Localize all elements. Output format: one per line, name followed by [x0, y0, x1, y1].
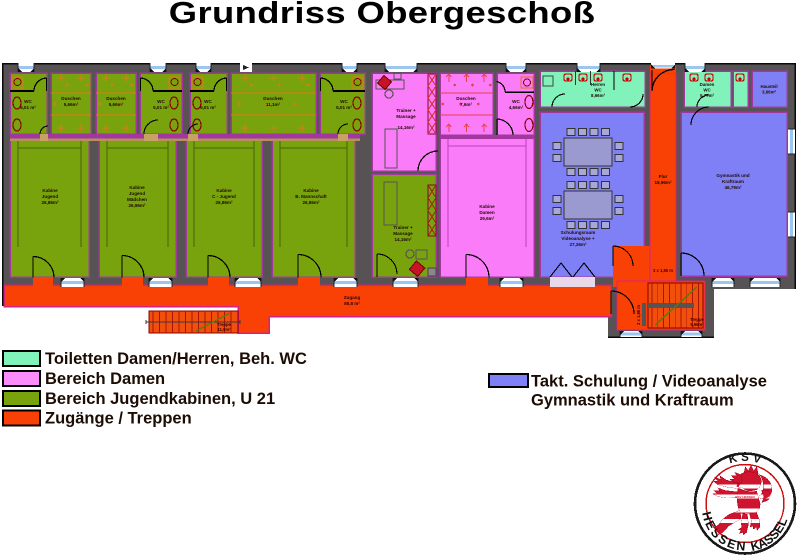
- svg-text:S: S: [741, 452, 749, 464]
- svg-text:26,86m²: 26,86m²: [215, 200, 233, 205]
- svg-text:Kraftraum: Kraftraum: [722, 179, 744, 184]
- svg-text:Trainer +: Trainer +: [393, 225, 413, 230]
- svg-text:KSV HESSEN: KSV HESSEN: [735, 495, 754, 499]
- svg-text:Takt. Schulung / Videoanalyse: Takt. Schulung / Videoanalyse: [531, 373, 767, 391]
- svg-text:WC: WC: [703, 87, 711, 92]
- svg-text:Massage: Massage: [396, 114, 416, 119]
- svg-text:Jugend: Jugend: [129, 191, 146, 196]
- svg-text:WC: WC: [24, 99, 32, 104]
- svg-text:Kabine: Kabine: [42, 188, 58, 193]
- svg-text:3,66m²: 3,66m²: [762, 89, 776, 94]
- svg-text:Zugang: Zugang: [344, 295, 361, 300]
- svg-text:27,26m²: 27,26m²: [569, 242, 587, 247]
- svg-text:Kabine: Kabine: [303, 188, 319, 193]
- svg-text:5,66m²: 5,66m²: [64, 102, 79, 107]
- svg-text:46,79m²: 46,79m²: [724, 185, 742, 190]
- svg-text:Trainer +: Trainer +: [396, 108, 416, 113]
- svg-text:Duschen: Duschen: [263, 96, 283, 101]
- svg-text:Duschen: Duschen: [106, 96, 126, 101]
- svg-text:Duschen: Duschen: [61, 96, 81, 101]
- svg-text:8,66m²: 8,66m²: [591, 93, 605, 98]
- svg-text:Massage: Massage: [393, 231, 413, 236]
- svg-text:5,66m²: 5,66m²: [109, 102, 124, 107]
- svg-text:18,96m²: 18,96m²: [654, 180, 672, 185]
- svg-text:14,16m²: 14,16m²: [397, 125, 415, 130]
- svg-text:Duschen: Duschen: [456, 96, 476, 101]
- svg-text:Herren: Herren: [591, 82, 605, 87]
- svg-text:Hausteil: Hausteil: [760, 84, 777, 89]
- svg-text:26,86m²: 26,86m²: [302, 200, 320, 205]
- svg-text:11,9m²: 11,9m²: [217, 327, 231, 332]
- svg-text:Mädchen: Mädchen: [127, 197, 147, 202]
- svg-text:WC: WC: [512, 99, 520, 104]
- svg-text:26,86m²: 26,86m²: [41, 200, 59, 205]
- svg-text:N: N: [736, 539, 746, 554]
- svg-text:Kabine: Kabine: [216, 188, 232, 193]
- svg-text:Flur: Flur: [659, 174, 668, 179]
- svg-text:Gymnastik und Kraftraum: Gymnastik und Kraftraum: [531, 392, 734, 410]
- svg-text:C - Jugend: C - Jugend: [212, 194, 236, 199]
- svg-text:Gymnastik und: Gymnastik und: [716, 173, 749, 178]
- svg-text:7,6m²: 7,6m²: [460, 102, 472, 107]
- svg-text:5,01 m²: 5,01 m²: [153, 105, 169, 110]
- svg-text:5,77m²: 5,77m²: [700, 93, 714, 98]
- svg-text:WC: WC: [204, 99, 212, 104]
- svg-text:29,6m²: 29,6m²: [480, 216, 495, 221]
- svg-text:Bereich Damen: Bereich Damen: [45, 370, 165, 388]
- svg-text:WC: WC: [157, 99, 165, 104]
- svg-text:3 x 1,86 m: 3 x 1,86 m: [636, 305, 641, 325]
- svg-text:11,1m²: 11,1m²: [266, 102, 281, 107]
- svg-text:Schulungsraum: Schulungsraum: [561, 230, 596, 235]
- svg-text:Zugänge / Treppen: Zugänge / Treppen: [45, 410, 192, 428]
- svg-text:Kabine: Kabine: [129, 185, 145, 190]
- svg-text:Videoanalyse +: Videoanalyse +: [561, 236, 595, 241]
- svg-text:26,86m²: 26,86m²: [128, 203, 146, 208]
- svg-text:WC: WC: [340, 99, 348, 104]
- svg-text:5,01 m²: 5,01 m²: [20, 105, 36, 110]
- svg-text:B. Mannschaft: B. Mannschaft: [295, 194, 327, 199]
- svg-text:3 x 1,86 m: 3 x 1,86 m: [653, 268, 673, 273]
- svg-text:88,8 m²: 88,8 m²: [344, 301, 360, 306]
- svg-text:5,01 m²: 5,01 m²: [336, 105, 352, 110]
- svg-text:Bereich Jugendkabinen, U 21: Bereich Jugendkabinen, U 21: [45, 390, 275, 408]
- svg-text:4,66m²: 4,66m²: [509, 105, 524, 110]
- svg-text:Damen: Damen: [479, 210, 495, 215]
- svg-text:Damen: Damen: [700, 82, 715, 87]
- svg-text:5,01 m²: 5,01 m²: [200, 105, 216, 110]
- svg-text:Kabine: Kabine: [479, 204, 495, 209]
- svg-text:Toiletten Damen/Herren, Beh. W: Toiletten Damen/Herren, Beh. WC: [45, 350, 307, 368]
- svg-text:WC: WC: [594, 87, 602, 92]
- svg-text:14,16m²: 14,16m²: [394, 237, 412, 242]
- svg-text:Jugend: Jugend: [42, 194, 59, 199]
- svg-text:5,96m²: 5,96m²: [690, 322, 704, 327]
